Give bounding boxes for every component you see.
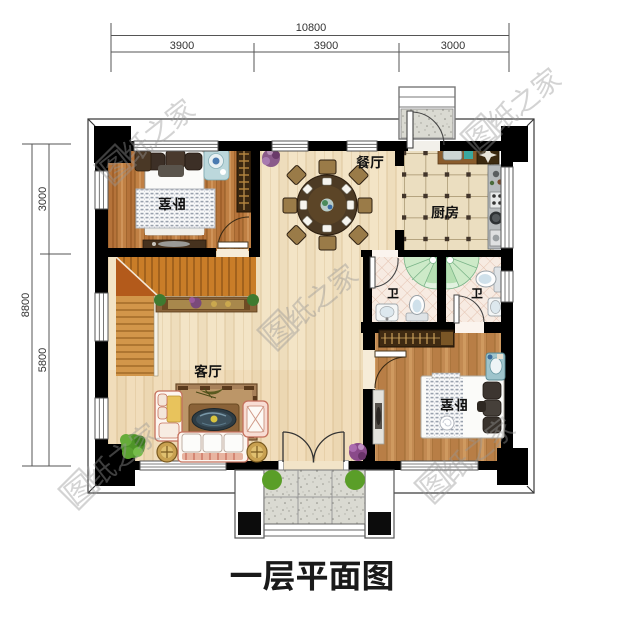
svg-text:3900: 3900 xyxy=(314,40,338,52)
svg-text:5800: 5800 xyxy=(37,348,49,372)
svg-text:3000: 3000 xyxy=(37,187,49,211)
svg-text:8800: 8800 xyxy=(20,293,32,317)
svg-text:3000: 3000 xyxy=(441,40,465,52)
svg-text:10800: 10800 xyxy=(296,22,327,34)
svg-text:3900: 3900 xyxy=(170,40,194,52)
